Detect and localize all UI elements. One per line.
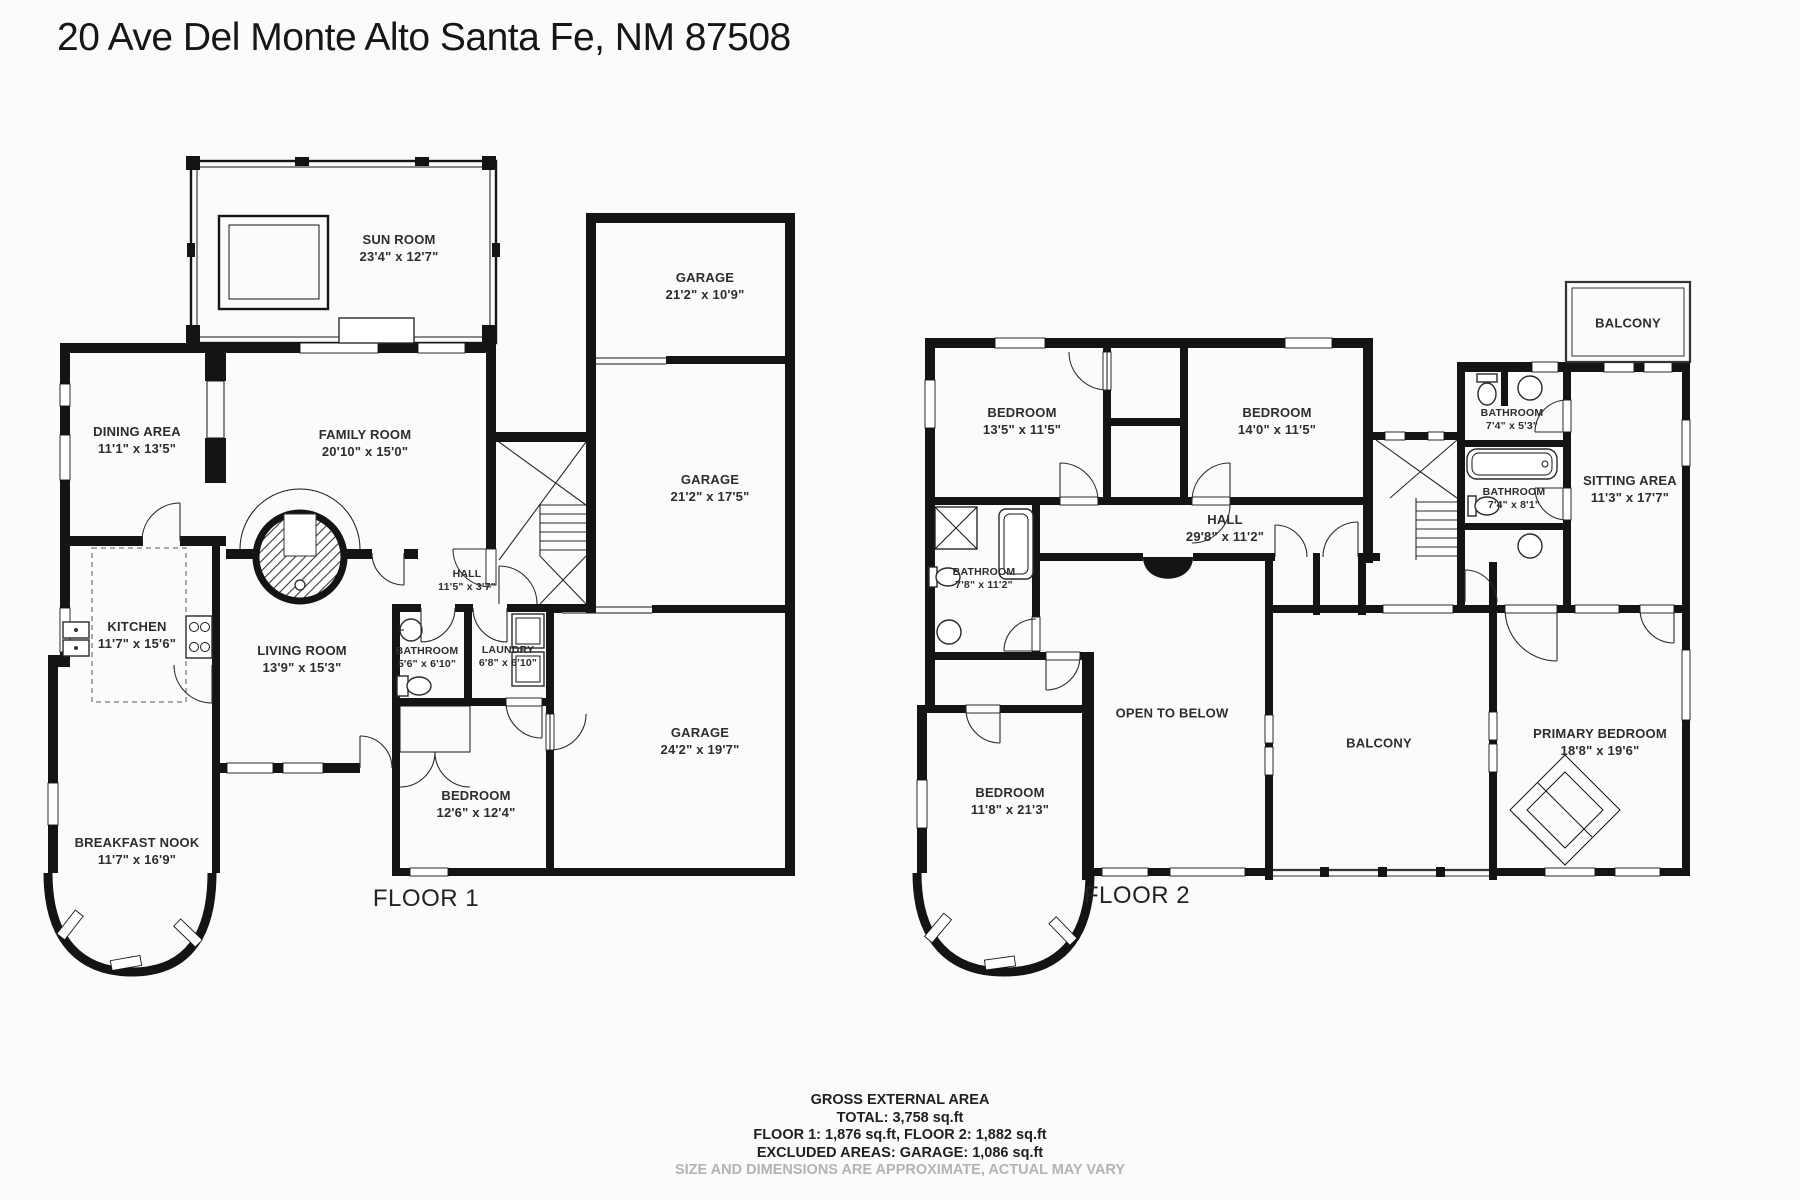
room-label-balcony-mid: BALCONY — [1346, 736, 1412, 753]
stairs-floor2 — [1376, 440, 1457, 560]
room-label-dining-area: DINING AREA11'1" x 13'5" — [93, 424, 181, 458]
total-area: TOTAL: 3,758 sq.ft — [675, 1110, 1125, 1128]
bath-upper-fixtures — [1477, 374, 1542, 405]
room-label-bath-lower: BATHROOM7'4" x 8'1" — [1483, 486, 1546, 512]
room-label-breakfast-nook: BREAKFAST NOOK11'7" x 16'9" — [75, 835, 200, 869]
room-label-bedroom-1: BEDROOM12'6" x 12'4" — [437, 788, 516, 822]
sink — [1518, 376, 1542, 400]
floor-plan-drawing — [0, 0, 1800, 1200]
room-label-sun-room: SUN ROOM23'4" x 12'7" — [360, 232, 439, 266]
room-label-garage-mid: GARAGE21'2" x 17'5" — [671, 472, 750, 506]
primary-corner-bed — [1510, 755, 1620, 865]
room-label-laundry: LAUNDRY6'8" x 6'10" — [479, 644, 537, 670]
room-label-sitting-area: SITTING AREA11'3" x 17'7" — [1583, 473, 1677, 507]
room-label-bedroom-bay: BEDROOM11'8" x 21'3" — [971, 785, 1049, 819]
floor-areas: FLOOR 1: 1,876 sq.ft, FLOOR 2: 1,882 sq.… — [675, 1127, 1125, 1145]
floor1-tag: FLOOR 1 — [373, 885, 479, 913]
floor1-walls — [48, 213, 795, 876]
breakfast-nook-bay — [48, 873, 212, 972]
gross-area-heading: GROSS EXTERNAL AREA — [675, 1092, 1125, 1110]
sun-room-structure — [186, 156, 500, 343]
toilet — [1477, 374, 1497, 405]
disclaimer: SIZE AND DIMENSIONS ARE APPROXIMATE, ACT… — [675, 1162, 1125, 1180]
floor2-tag: FLOOR 2 — [1084, 882, 1190, 910]
room-label-hall-1: HALL11'5" x 3'7" — [438, 568, 496, 594]
kiva-chimney — [1143, 557, 1193, 579]
stairs-floor1 — [499, 442, 586, 604]
room-label-bedroom-right: BEDROOM14'0" x 11'5" — [1238, 405, 1316, 439]
room-label-kitchen: KITCHEN11'7" x 15'6" — [98, 619, 176, 653]
room-label-living-room: LIVING ROOM13'9" x 15'3" — [257, 643, 347, 677]
bedroom1-closet — [400, 706, 470, 787]
sink — [1518, 534, 1542, 558]
room-label-primary-bedroom: PRIMARY BEDROOM18'8" x 19'6" — [1533, 726, 1667, 760]
room-label-garage-top: GARAGE21'2" x 10'9" — [666, 270, 745, 304]
room-label-bathroom-west: BATHROOM7'8" x 11'2" — [953, 566, 1016, 592]
sink — [937, 620, 961, 644]
room-label-open-to-below: OPEN TO BELOW — [1116, 706, 1229, 723]
room-label-family-room: FAMILY ROOM20'10" x 15'0" — [319, 427, 412, 461]
bathtub — [1467, 449, 1557, 479]
area-summary: GROSS EXTERNAL AREA TOTAL: 3,758 sq.ft F… — [675, 1092, 1125, 1180]
page-title: 20 Ave Del Monte Alto Santa Fe, NM 87508 — [57, 16, 791, 60]
room-label-hall-2: HALL29'8" x 11'2" — [1186, 512, 1264, 546]
room-label-garage-main: GARAGE24'2" x 19'7" — [661, 725, 740, 759]
floor2-plan — [917, 282, 1690, 972]
room-label-bath-upper: BATHROOM7'4" x 5'3" — [1481, 407, 1544, 433]
excluded-areas: EXCLUDED AREAS: GARAGE: 1,086 sq.ft — [675, 1145, 1125, 1163]
bedroom-bay-window — [917, 873, 1090, 972]
room-label-bathroom-1: BATHROOM5'6" x 6'10" — [396, 645, 459, 671]
room-label-bedroom-left: BEDROOM13'5" x 11'5" — [983, 405, 1061, 439]
balcony-mid-railing — [1273, 867, 1489, 877]
floor-plan-page: 20 Ave Del Monte Alto Santa Fe, NM 87508 — [0, 0, 1800, 1200]
stove — [186, 616, 212, 658]
skylight — [219, 216, 328, 309]
shower — [935, 507, 977, 549]
room-label-balcony-top: BALCONY — [1595, 316, 1661, 333]
